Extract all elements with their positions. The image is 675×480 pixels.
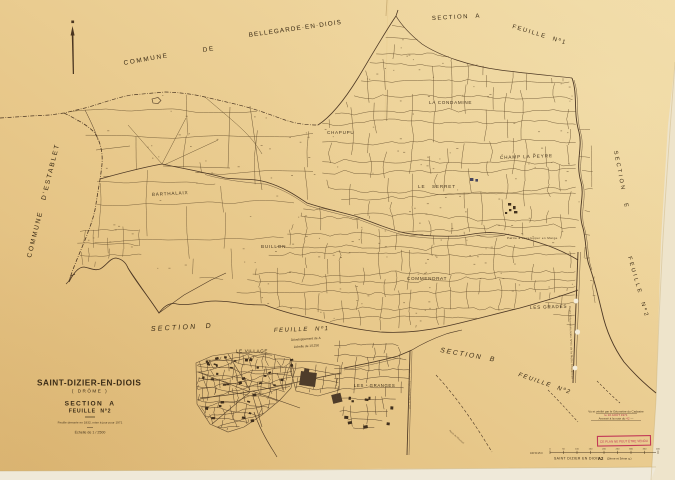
svg-text:COMMENDRAT: COMMENDRAT [407,276,447,281]
svg-text:Feuille dressée en 1832, mise: Feuille dressée en 1832, mise à jour pou… [58,421,123,425]
svg-text:100 50 25 0: 100 50 25 0 [530,452,543,455]
svg-text:( DRÔME ): ( DRÔME ) [72,388,108,394]
svg-text:LE VILLAGE: LE VILLAGE [236,349,268,354]
svg-text:LE SERRET: LE SERRET [418,184,456,189]
svg-text:Partie à développer en Marge: Partie à développer en Marge [507,236,558,240]
svg-text:Annexé à la note du 42 —: Annexé à la note du 42 — [599,417,634,421]
svg-text:LES ⁿ GRANGES: LES ⁿ GRANGES [354,383,395,388]
svg-text:SAINT DIZIER EN DIOIS: SAINT DIZIER EN DIOIS [554,457,601,461]
svg-text:Échelle de 1 / 2500: Échelle de 1 / 2500 [75,430,106,435]
svg-text:CE PLAN NE PEUT ÊTRE VENDU: CE PLAN NE PEUT ÊTRE VENDU [600,438,649,444]
svg-text:SECTION A: SECTION A [65,401,116,408]
svg-text:Chemin Départemental Nº161: Chemin Départemental Nº161 [408,370,413,410]
svg-text:CHAPUPU: CHAPUPU [327,130,354,135]
svg-text:BUILLON: BUILLON [261,244,286,249]
svg-text:A2: A2 [598,456,604,461]
svg-text:LA CONDAMINE: LA CONDAMINE [429,100,472,105]
svg-text:FEUILLE Nº2: FEUILLE Nº2 [69,409,112,415]
svg-text:SAINT-DIZIER-EN-DIOIS: SAINT-DIZIER-EN-DIOIS [37,379,141,388]
svg-text:(2ème et 3ème q.): (2ème et 3ème q.) [607,457,632,461]
